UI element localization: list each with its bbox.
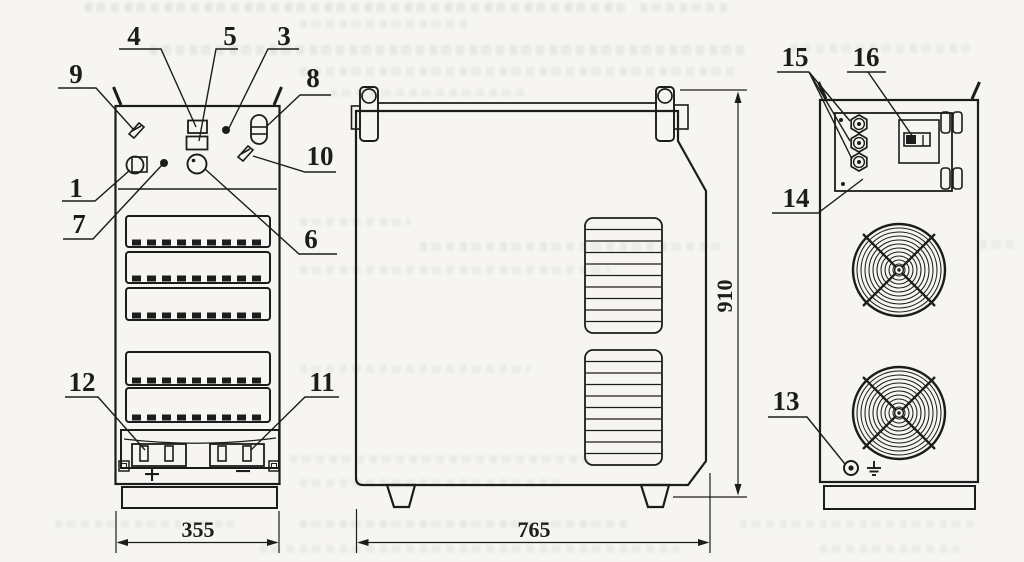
dim-value-910: 910	[712, 280, 737, 313]
scanned-drawing-page: + −	[0, 0, 1024, 562]
carry-handle	[352, 87, 689, 141]
callout-label-13: 13	[773, 386, 800, 416]
callout-labels: 9 4 5 3 8 10 1 7 6 12 11 15 16 14 13	[69, 21, 880, 416]
side-vent-lower	[585, 350, 662, 465]
foot	[641, 485, 669, 507]
leader-line-4	[119, 49, 196, 127]
callout-label-10: 10	[307, 141, 334, 171]
fan-grille	[853, 224, 945, 316]
leader-line-11	[251, 397, 339, 450]
leader-line-12	[65, 397, 145, 450]
earth-ground-icon	[867, 461, 881, 475]
front-vent-louvers-upper	[126, 216, 270, 320]
meter-window-5	[187, 137, 208, 150]
base-plinth-rear	[824, 486, 975, 509]
negative-terminal-label: −	[234, 455, 251, 488]
toggle-switch-8	[251, 115, 267, 144]
dim-value-765: 765	[518, 517, 551, 542]
adjust-knob-6	[188, 155, 207, 174]
rear-connector-socket	[851, 115, 867, 133]
callout-label-1: 1	[69, 173, 83, 203]
callout-label-6: 6	[304, 224, 318, 254]
leader-line-15b	[809, 72, 850, 141]
handle-end-tick	[114, 87, 122, 105]
rear-connector-socket	[851, 134, 867, 152]
rear-connection-panel-14	[835, 112, 962, 191]
dim-value-355: 355	[182, 517, 215, 542]
foot	[387, 485, 415, 507]
callout-label-3: 3	[277, 21, 291, 51]
callout-label-4: 4	[127, 21, 141, 51]
callout-label-16: 16	[853, 42, 880, 72]
rear-view	[819, 82, 980, 509]
handle-end-tick	[274, 87, 282, 105]
cabinet-body-front	[116, 106, 280, 484]
callout-label-9: 9	[69, 59, 83, 89]
callout-label-14: 14	[783, 183, 810, 213]
side-view	[352, 87, 707, 507]
callout-label-15: 15	[782, 42, 809, 72]
indicator-lamp-9	[129, 123, 144, 138]
leader-line-13	[768, 417, 845, 464]
indicator-lamp-10	[238, 146, 253, 161]
front-vent-louvers-lower	[126, 352, 270, 422]
side-vent-upper	[585, 218, 662, 333]
fan-grille	[853, 367, 945, 459]
rear-connector-socket	[851, 153, 867, 171]
leader-line-5	[199, 49, 238, 141]
callout-label-8: 8	[306, 63, 320, 93]
dimension-front-width: 355	[116, 511, 279, 553]
handle-end-tick	[972, 82, 980, 99]
callout-label-7: 7	[72, 209, 86, 239]
ground-terminal-13	[844, 461, 858, 475]
callout-label-11: 11	[309, 367, 335, 397]
leader-line-9	[58, 88, 133, 129]
callout-label-5: 5	[223, 21, 237, 51]
meter-window-4	[188, 121, 207, 134]
outline-drawing-svg: + −	[0, 0, 1024, 562]
callout-label-12: 12	[69, 367, 96, 397]
leader-line-16a	[868, 72, 913, 137]
